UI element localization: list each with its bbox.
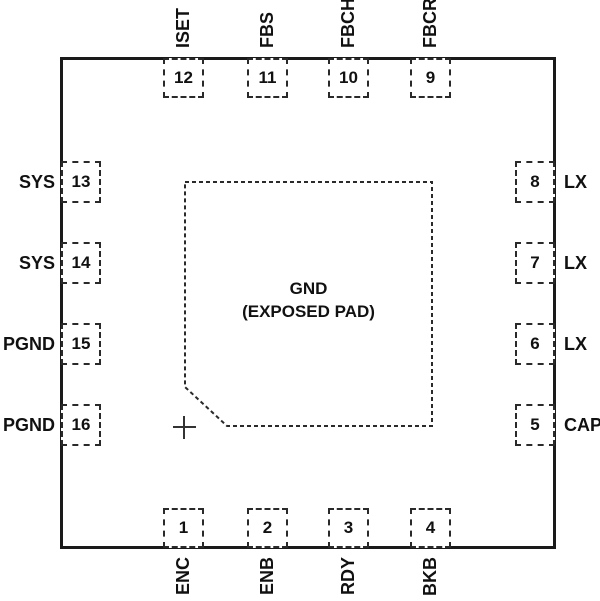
pin-2-name-label: ENB (257, 557, 277, 601)
pin-4-number: 4 (426, 518, 435, 538)
exposed-pad-label-line1: GND (185, 277, 432, 300)
pin-11-number: 11 (259, 68, 277, 88)
pin-8-pad: 8 (515, 161, 555, 203)
pin-5-name-label: CAP (564, 414, 600, 436)
pin-8-name-label: LX (564, 171, 600, 193)
pin-5-pad: 5 (515, 404, 555, 446)
pin-2-number: 2 (263, 518, 272, 538)
pin-16-pad: 16 (61, 404, 101, 446)
pin-14-number: 14 (72, 253, 91, 273)
pin-9-name-label: FBCR (420, 0, 440, 48)
pin-10-number: 10 (339, 68, 358, 88)
pin-6-name-label: LX (564, 333, 600, 355)
pin-1-number: 1 (179, 518, 188, 538)
pin-6-number: 6 (530, 334, 539, 354)
pin-3-name-label: RDY (338, 557, 358, 601)
pin-1-name-label: ENC (173, 557, 193, 601)
pin-12-number: 12 (174, 68, 193, 88)
pin-7-name-label: LX (564, 252, 600, 274)
pin-14-pad: 14 (61, 242, 101, 284)
pin-16-number: 16 (72, 415, 91, 435)
pin-12-name-label: ISET (173, 0, 193, 48)
pin-14-name-label: SYS (0, 252, 55, 274)
pin-9-number: 9 (426, 68, 435, 88)
pin-13-number: 13 (72, 172, 91, 192)
pin-11-name-label: FBS (257, 0, 277, 48)
pin-5-number: 5 (530, 415, 539, 435)
pin-13-name-label: SYS (0, 171, 55, 193)
pin-7-number: 7 (530, 253, 539, 273)
exposed-pad-label-line2: (EXPOSED PAD) (185, 300, 432, 323)
pin-7-pad: 7 (515, 242, 555, 284)
pin-16-name-label: PGND (0, 414, 55, 436)
pin1-crosshair-icon (173, 416, 196, 439)
pin-2-pad: 2 (247, 508, 288, 548)
pin-10-name-label: FBCH (338, 0, 358, 48)
pin-10-pad: 10 (328, 58, 369, 98)
pin-15-pad: 15 (61, 323, 101, 365)
pin-9-pad: 9 (410, 58, 451, 98)
pin-12-pad: 12 (163, 58, 204, 98)
pin-6-pad: 6 (515, 323, 555, 365)
pin-4-pad: 4 (410, 508, 451, 548)
pin-15-number: 15 (72, 334, 91, 354)
pin-3-pad: 3 (328, 508, 369, 548)
exposed-pad-label: GND (EXPOSED PAD) (185, 277, 432, 323)
pin-4-name-label: BKB (420, 557, 440, 601)
pinout-diagram: GND (EXPOSED PAD) 12 11 10 9 1 2 3 4 13 … (0, 0, 600, 601)
pin-3-number: 3 (344, 518, 353, 538)
pin-15-name-label: PGND (0, 333, 55, 355)
pin-1-pad: 1 (163, 508, 204, 548)
pin-13-pad: 13 (61, 161, 101, 203)
pin-11-pad: 11 (247, 58, 288, 98)
pin-8-number: 8 (530, 172, 539, 192)
